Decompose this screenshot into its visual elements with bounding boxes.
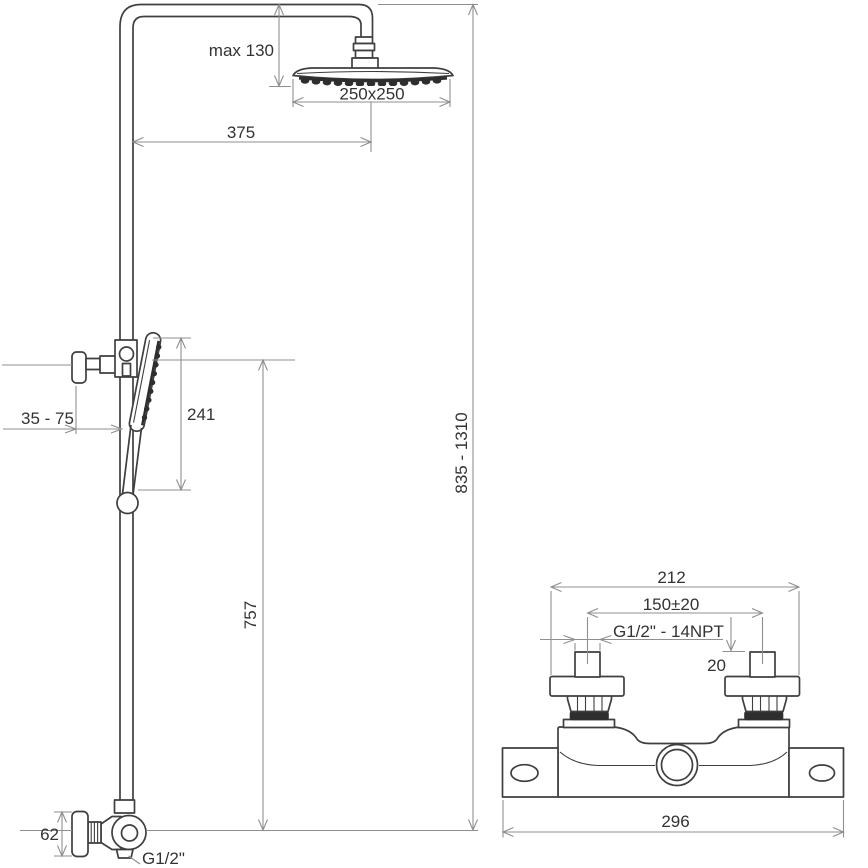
hand-shower-hose-nut (117, 493, 138, 514)
elbow-collar (115, 800, 135, 813)
dim-g12-14npt: G1/2" - 14NPT (540, 622, 724, 651)
shower-system-dimension-drawing: max 130 250x250 375 241 (0, 0, 868, 868)
left-gasket (570, 712, 609, 721)
mixer-figure: 212 150±20 G1/2" - 14NPT (503, 568, 844, 838)
column-dimensions: max 130 250x250 375 241 (2, 5, 478, 868)
right-slot-hole (810, 765, 835, 781)
dim-757: 757 (152, 360, 295, 830)
dim-label-250x250: 250x250 (339, 85, 404, 104)
dim-label-g12-14npt: G1/2" - 14NPT (613, 622, 724, 641)
holder-knob (120, 347, 134, 361)
dim-label-757: 757 (241, 601, 260, 629)
dim-label-835-1310: 835 - 1310 (452, 412, 471, 493)
dim-label-62: 62 (40, 825, 59, 844)
holder-slot (123, 364, 131, 377)
shower-column-figure: max 130 250x250 375 241 (2, 5, 478, 868)
overhead-shower-connector (352, 37, 378, 70)
dim-35-75: 35 - 75 (3, 386, 122, 434)
dim-label-35-75: 35 - 75 (21, 409, 74, 428)
left-flange (550, 677, 624, 697)
dim-label-20: 20 (707, 656, 726, 675)
dim-296: 296 (503, 800, 844, 838)
center-cap (657, 745, 698, 786)
dim-250x250: 250x250 (293, 79, 450, 152)
dim-label-212: 212 (657, 568, 685, 587)
dim-label-296: 296 (661, 812, 689, 831)
left-slot-hole (511, 765, 538, 782)
hand-shower-holder (115, 340, 137, 377)
elbow-bore (122, 825, 138, 841)
dim-835-1310: 835 - 1310 (452, 5, 473, 831)
left-union-nut (568, 696, 612, 712)
outlet-stub (117, 850, 134, 859)
dim-label-375: 375 (227, 123, 255, 142)
technical-drawing-page: max 130 250x250 375 241 (0, 0, 868, 868)
dim-62: 62 (40, 812, 72, 856)
wall-bracket (72, 352, 117, 383)
wall-plate-bottom (72, 812, 88, 857)
dim-375: 375 (133, 123, 371, 142)
bottom-elbow-assembly (72, 800, 146, 858)
right-flange (725, 677, 800, 697)
right-union-nut (743, 696, 787, 712)
dim-label-150-20: 150±20 (643, 595, 700, 614)
dim-label-g12: G1/2" (142, 849, 185, 868)
label-g12-bottom: G1/2" (129, 849, 185, 868)
dim-label-241: 241 (187, 405, 215, 424)
right-gasket (745, 712, 784, 721)
dim-label-max-130: max 130 (209, 41, 274, 60)
